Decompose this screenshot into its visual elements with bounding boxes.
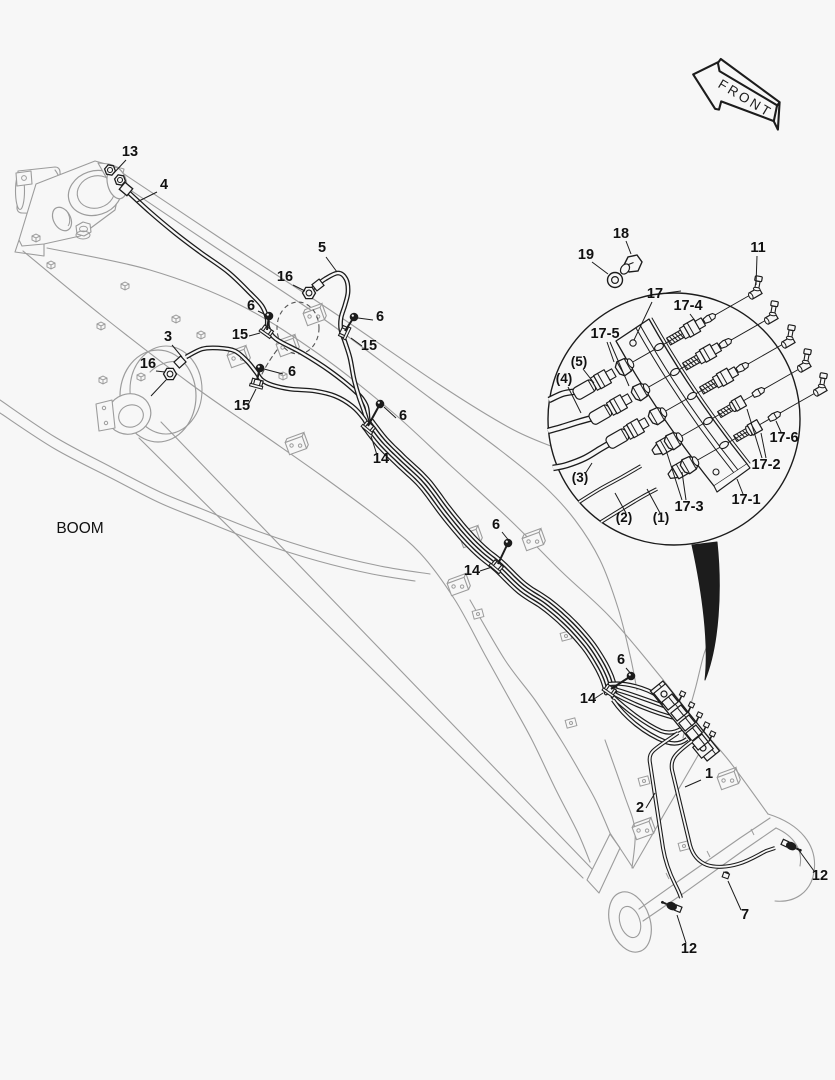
svg-text:(5): (5) (571, 354, 588, 369)
svg-text:16: 16 (140, 356, 156, 372)
svg-text:13: 13 (122, 144, 138, 160)
svg-text:4: 4 (160, 177, 168, 193)
svg-text:6: 6 (492, 517, 500, 533)
svg-text:6: 6 (247, 298, 255, 314)
svg-text:(1): (1) (653, 510, 670, 525)
svg-text:11: 11 (750, 240, 765, 256)
svg-text:17-6: 17-6 (769, 430, 798, 446)
svg-text:17-4: 17-4 (673, 298, 702, 314)
svg-text:15: 15 (232, 327, 248, 343)
svg-text:16: 16 (277, 269, 293, 285)
svg-text:17: 17 (647, 286, 663, 302)
svg-text:18: 18 (613, 226, 629, 242)
svg-text:7: 7 (741, 907, 749, 923)
svg-text:(2): (2) (616, 510, 633, 525)
svg-text:17-1: 17-1 (731, 492, 760, 508)
svg-text:14: 14 (373, 451, 389, 467)
svg-text:12: 12 (681, 941, 697, 957)
svg-text:BOOM: BOOM (56, 520, 103, 537)
svg-text:2: 2 (636, 800, 644, 816)
svg-text:6: 6 (376, 309, 384, 325)
svg-text:17-5: 17-5 (590, 326, 619, 342)
svg-text:12: 12 (812, 868, 828, 884)
svg-text:(4): (4) (556, 371, 573, 386)
svg-text:6: 6 (399, 408, 407, 424)
svg-text:17-2: 17-2 (751, 457, 780, 473)
svg-text:6: 6 (617, 652, 625, 668)
svg-text:3: 3 (164, 329, 172, 345)
svg-text:17-3: 17-3 (674, 499, 703, 515)
svg-text:15: 15 (234, 398, 250, 414)
svg-text:15: 15 (361, 338, 377, 354)
svg-text:19: 19 (578, 247, 594, 263)
svg-text:14: 14 (580, 691, 596, 707)
svg-text:1: 1 (705, 766, 713, 782)
svg-text:6: 6 (288, 364, 296, 380)
svg-text:5: 5 (318, 240, 326, 256)
svg-text:14: 14 (464, 563, 480, 579)
